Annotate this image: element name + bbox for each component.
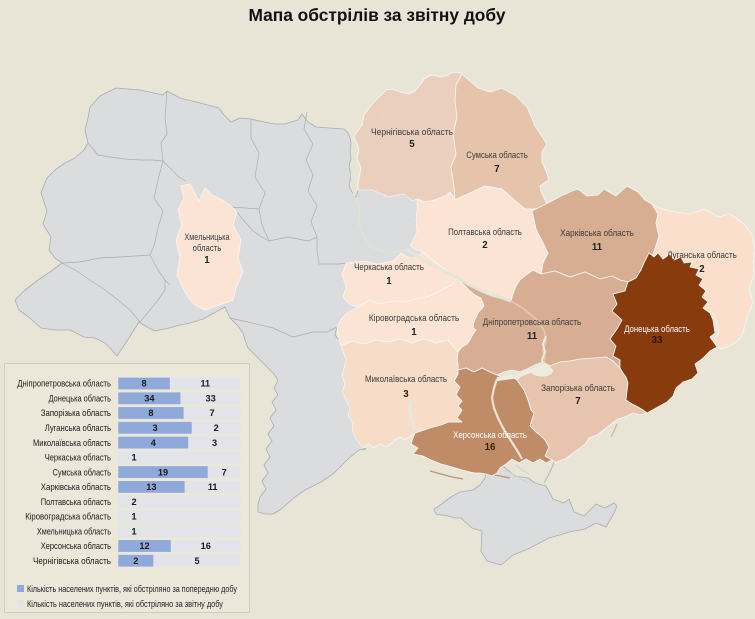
svg-text:область: область: [193, 243, 222, 253]
svg-text:Хмельницька: Хмельницька: [184, 232, 230, 242]
svg-text:Луганська область: Луганська область: [667, 250, 737, 260]
svg-text:3: 3: [152, 423, 157, 433]
svg-text:5: 5: [409, 139, 415, 150]
svg-text:Херсонська область: Херсонська область: [41, 541, 111, 551]
svg-text:1: 1: [386, 276, 392, 287]
svg-text:Кількість населених пунктів, я: Кількість населених пунктів, які обстріл…: [27, 599, 223, 609]
svg-text:2: 2: [699, 264, 704, 275]
svg-text:7: 7: [222, 467, 227, 477]
svg-text:1: 1: [131, 512, 136, 522]
svg-text:19: 19: [158, 467, 168, 477]
svg-text:Хмельницька область: Хмельницька область: [37, 526, 111, 536]
svg-text:1: 1: [411, 327, 417, 338]
svg-text:Запорізька область: Запорізька область: [41, 408, 111, 418]
svg-text:12: 12: [139, 541, 149, 551]
svg-text:34: 34: [144, 394, 155, 404]
svg-text:33: 33: [652, 335, 663, 346]
svg-text:Чернігівська область: Чернігівська область: [371, 127, 453, 137]
svg-text:Чернігівська область: Чернігівська область: [33, 556, 111, 566]
svg-text:1: 1: [204, 255, 210, 266]
svg-text:Сумська область: Сумська область: [53, 467, 112, 477]
svg-text:16: 16: [201, 541, 211, 551]
svg-text:Кіровоградська область: Кіровоградська область: [25, 512, 111, 522]
svg-text:7: 7: [575, 396, 580, 407]
svg-text:33: 33: [205, 394, 215, 404]
svg-text:Харківська область: Харківська область: [41, 482, 111, 492]
svg-text:Херсонська область: Херсонська область: [453, 430, 527, 440]
svg-text:Запорізька область: Запорізька область: [541, 383, 615, 393]
svg-text:7: 7: [494, 164, 499, 175]
svg-text:Дніпропетровська область: Дніпропетровська область: [17, 379, 111, 389]
svg-text:16: 16: [485, 442, 496, 453]
svg-text:7: 7: [210, 408, 215, 418]
svg-text:Сумська область: Сумська область: [466, 150, 528, 160]
svg-text:Черкаська область: Черкаська область: [45, 453, 111, 463]
svg-text:Полтавська область: Полтавська область: [41, 497, 111, 507]
svg-text:Полтавська область: Полтавська область: [448, 227, 522, 237]
svg-text:11: 11: [208, 482, 218, 492]
svg-text:2: 2: [131, 497, 136, 507]
svg-text:2: 2: [482, 240, 487, 251]
svg-text:Луганська область: Луганська область: [45, 423, 111, 433]
svg-text:3: 3: [212, 438, 217, 448]
svg-text:Миколаївська область: Миколаївська область: [33, 438, 111, 448]
svg-text:Кількість населених пунктів, я: Кількість населених пунктів, які обстріл…: [27, 584, 237, 594]
svg-text:11: 11: [527, 331, 538, 342]
svg-text:Кіровоградська область: Кіровоградська область: [369, 313, 459, 323]
svg-text:Дніпропетровська область: Дніпропетровська область: [483, 317, 582, 327]
svg-text:3: 3: [403, 389, 409, 400]
svg-text:11: 11: [592, 242, 603, 253]
svg-text:13: 13: [146, 482, 156, 492]
svg-text:1: 1: [131, 526, 136, 536]
svg-text:2: 2: [214, 423, 219, 433]
svg-text:Донецька область: Донецька область: [49, 394, 112, 404]
svg-text:8: 8: [148, 408, 153, 418]
svg-text:Харківська область: Харківська область: [560, 228, 634, 238]
svg-text:1: 1: [131, 453, 136, 463]
svg-text:Черкаська область: Черкаська область: [354, 262, 424, 272]
svg-text:Миколаївська область: Миколаївська область: [365, 374, 447, 384]
svg-text:4: 4: [151, 438, 157, 448]
svg-text:2: 2: [133, 556, 138, 566]
svg-text:Мапа обстрілів за звітну добу: Мапа обстрілів за звітну добу: [249, 5, 506, 25]
svg-text:8: 8: [142, 379, 147, 389]
svg-text:5: 5: [194, 556, 199, 566]
svg-text:Донецька область: Донецька область: [624, 324, 690, 334]
svg-text:11: 11: [200, 379, 210, 389]
